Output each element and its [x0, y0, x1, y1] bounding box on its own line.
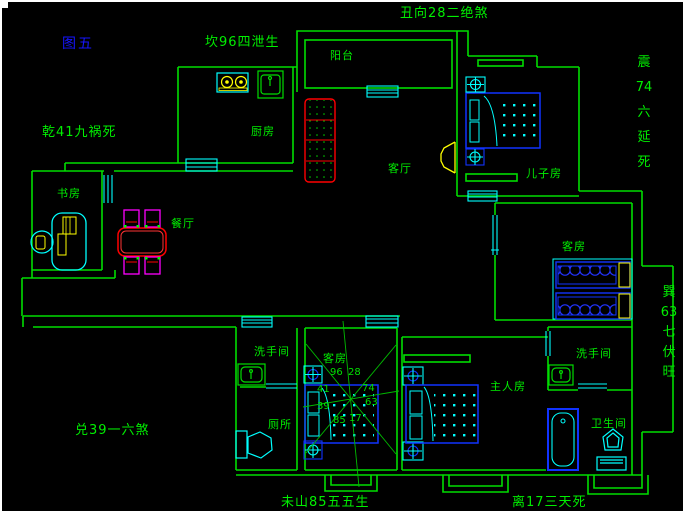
- compass-number: 28: [348, 368, 361, 378]
- compass-number: 39: [317, 402, 330, 412]
- washbasin-right: [549, 365, 573, 385]
- guest-twin-beds: [553, 259, 632, 319]
- guest-room-door: [491, 215, 499, 255]
- fengshui-label-xun: 巽 63 七 伏 旺: [658, 286, 680, 386]
- room-label-dining-room: 餐厅: [171, 218, 195, 229]
- room-label-kitchen: 厨房: [251, 126, 275, 137]
- study-desk: [31, 213, 86, 270]
- bathtub: [548, 409, 578, 470]
- fengshui-label-kan: 坎96四泄生: [205, 36, 280, 49]
- room-label-washroom-left: 洗手间: [254, 346, 290, 357]
- fengshui-label-li: 离17三天死: [512, 496, 587, 509]
- room-label-toilet: 厕所: [268, 419, 292, 430]
- figure-caption: 图五: [62, 37, 94, 51]
- compass-number: 17: [349, 414, 362, 424]
- room-label-guest-center: 客房: [323, 353, 347, 364]
- study-door: [104, 175, 112, 203]
- compass-number: 96: [330, 368, 343, 378]
- fengshui-label-zhen: 震 74 六 延 死: [633, 56, 655, 181]
- washroom-right-door: [546, 331, 550, 356]
- frame-bottom: [0, 511, 685, 518]
- compass-number: 41: [317, 385, 330, 395]
- fengshui-label-wei: 未山85五五生: [281, 496, 370, 509]
- stove: [217, 73, 248, 92]
- frame-corner: [0, 0, 8, 8]
- toilet-left: [236, 431, 272, 458]
- room-label-washroom-right: 洗手间: [576, 348, 612, 359]
- plant-boxes: [305, 99, 335, 182]
- toilet-door: [266, 384, 297, 388]
- room-label-master-room: 主人房: [490, 381, 526, 392]
- toilet-right: [597, 429, 626, 470]
- bathroom-door: [578, 384, 607, 388]
- room-label-study: 书房: [57, 188, 81, 199]
- room-label-bathroom: 卫生间: [591, 418, 627, 429]
- compass-number: 74: [362, 384, 375, 394]
- dining-set: [118, 210, 166, 274]
- fengshui-label-dui: 兑39一六煞: [75, 424, 150, 437]
- compass-number: 85: [333, 416, 346, 426]
- room-label-living-room: 客厅: [388, 163, 412, 174]
- fengshui-label-qian: 乾41九祸死: [42, 126, 117, 139]
- room-label-sons-room: 儿子房: [526, 168, 562, 179]
- washbasin-left: [238, 364, 265, 385]
- floorplan-canvas: 图五 坎96四泄生 丑向28二绝煞 乾41九祸死 兑39一六煞 未山85五五生 …: [0, 0, 685, 518]
- tv: [441, 142, 455, 173]
- fengshui-label-chou: 丑向28二绝煞: [400, 7, 489, 20]
- master-bed: [406, 385, 478, 443]
- sons-bed: [466, 93, 540, 148]
- floorplan-drawing: [0, 0, 685, 518]
- frame-top: [0, 0, 685, 2]
- room-label-balcony: 阳台: [330, 50, 354, 61]
- compass-number: 63: [365, 398, 378, 408]
- room-label-guest-right: 客房: [562, 241, 586, 252]
- kitchen-sink: [258, 71, 283, 98]
- frame-left: [0, 0, 2, 518]
